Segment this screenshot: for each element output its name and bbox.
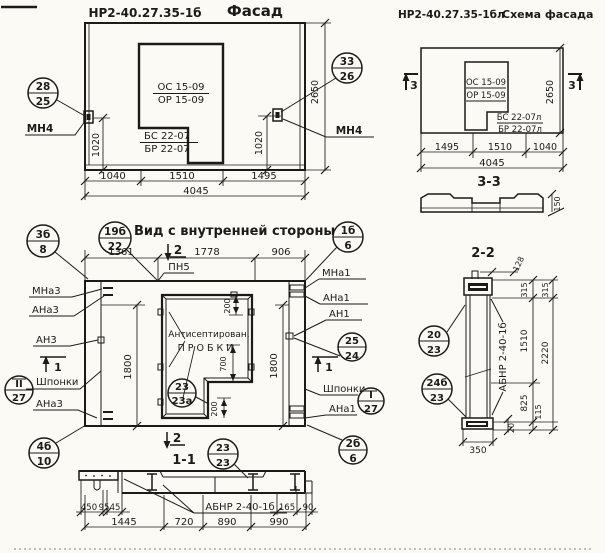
svg-text:23: 23	[175, 382, 189, 393]
callout-33-26: 33 26	[281, 53, 362, 112]
shponki-left-label: Шпонки	[36, 377, 78, 388]
svg-text:24: 24	[345, 351, 359, 362]
schema-code: НР2-40.27.35-1бл	[398, 9, 505, 21]
section-3-3-thickness: 150	[553, 196, 562, 211]
s22-dim-20: 20	[507, 423, 516, 433]
svg-text:23: 23	[216, 443, 230, 454]
left-rib-anchor-marks	[103, 288, 113, 419]
s11-dim-990: 990	[269, 517, 288, 528]
mna1-leader	[305, 279, 366, 288]
s22-dim-1510: 1510	[520, 329, 530, 352]
inner-dim-top: 1361 1778 906	[81, 247, 309, 281]
schema-opening-label-2: ОР 15-09	[466, 91, 505, 101]
facade-drawing: НР2-40.27.35-1б Фасад ОС 15-09 ОР 15-09 …	[25, 2, 374, 200]
s11-dim-1445: 1445	[111, 517, 136, 528]
callout-20-23: 20 23	[419, 305, 465, 356]
svg-text:200: 200	[223, 298, 232, 313]
ana1-bottom-label: АНа1	[329, 404, 356, 415]
svg-text:I: I	[369, 390, 373, 401]
facade-dim-height: 2650	[305, 19, 331, 174]
svg-text:24б: 24б	[427, 377, 448, 389]
dim-plug-bottom: 200	[210, 398, 231, 418]
right-rib-anchor-top-2	[290, 292, 304, 297]
s11-main-lines	[79, 471, 305, 493]
svg-text:4б: 4б	[37, 441, 52, 453]
facade-anchor-left-core	[87, 114, 91, 120]
svg-text:1: 1	[54, 361, 62, 374]
callout-bottom: 25	[36, 96, 51, 108]
s11-shponka-keys	[147, 474, 300, 490]
s22-dim-2220: 2220	[541, 341, 551, 364]
s11-dim-165: 165	[279, 503, 295, 513]
mna3-label: МНа3	[32, 286, 61, 297]
svg-text:27: 27	[364, 404, 378, 415]
section-1-1-drawing: АБНР 2-40-1б 450 95 45 165 90 1445 720 8…	[76, 471, 318, 531]
svg-text:1800: 1800	[123, 354, 134, 379]
inner-dim-v-right: 1800	[269, 301, 289, 430]
mna1-label: МНа1	[322, 268, 351, 279]
inner-dim-w1: 1361	[108, 247, 133, 258]
callout-28-25: 28 25	[28, 78, 85, 116]
svg-text:200: 200	[210, 401, 219, 416]
facade-dim-w3: 1495	[251, 171, 276, 182]
schema-opening-label-4: БР 22-07л	[498, 125, 542, 135]
s22-dim-115: 115	[534, 404, 543, 419]
shponki-right-label: Шпонки	[323, 384, 365, 395]
callout-bottom: 26	[340, 71, 355, 83]
facade-title: Фасад	[227, 2, 283, 20]
s11-left-channel	[79, 471, 118, 480]
section-2-2-drawing: 2-2 АБНР 2-40-1б 20 23 24б 23 315	[419, 246, 558, 456]
svg-text:27: 27	[12, 393, 26, 404]
s22-dim-825: 825	[520, 394, 530, 411]
ana1-bottom-leader	[305, 415, 357, 418]
svg-text:3: 3	[568, 79, 576, 92]
schema-dim-total: 4045	[479, 158, 504, 169]
facade-dim-w2: 1510	[169, 171, 194, 182]
svg-text:1020: 1020	[254, 131, 265, 155]
ana3-bottom-label: АНа3	[36, 399, 63, 410]
callout-I-27: I 27	[358, 388, 384, 415]
inner-dim-v-left: 1800	[101, 301, 145, 430]
svg-text:6: 6	[344, 240, 351, 252]
s11-dim-90: 90	[303, 503, 314, 513]
callout-3b-8: 3б 8	[27, 225, 88, 279]
svg-text:3: 3	[410, 79, 418, 92]
an3-label: АН3	[36, 335, 57, 346]
callout-top: 33	[340, 56, 355, 68]
facade-dim-bottom: 1040 1510 1495 4045	[81, 170, 309, 200]
dim-plug-top: 200	[223, 295, 243, 315]
pn5-label: ПН5	[168, 262, 189, 273]
callout-top: 28	[36, 81, 51, 93]
leader-line	[281, 78, 336, 112]
s11-dim-95: 95	[99, 503, 110, 513]
schema-title: Схема фасада	[502, 8, 593, 21]
schema-dim-w3: 1040	[533, 142, 557, 153]
schema-drawing: НР2-40.27.35-1бл Схема фасада ОС 15-09 О…	[398, 8, 593, 216]
schema-dim-w2: 1510	[488, 142, 512, 153]
callout-24b-23: 24б 23	[422, 374, 466, 417]
svg-text:1б: 1б	[341, 225, 356, 237]
ana1-label: АНа1	[323, 293, 350, 304]
pn5-leader	[158, 273, 194, 281]
drawing-canvas: НР2-40.27.35-1б Фасад ОС 15-09 ОР 15-09 …	[0, 0, 605, 553]
section-2-2-title: 2-2	[471, 246, 495, 261]
section-mark-3-right: 3	[568, 73, 584, 92]
callout-2b-6: 2б 6	[307, 425, 367, 465]
svg-text:3б: 3б	[36, 229, 51, 241]
svg-text:II: II	[15, 379, 22, 390]
schema-dim-height: 2650	[545, 44, 564, 137]
facade-dim-total: 4045	[183, 186, 208, 197]
svg-text:19б: 19б	[104, 226, 126, 238]
callout-4b-10: 4б 10	[29, 425, 86, 468]
leader-line	[57, 100, 85, 116]
s11-dim-890: 890	[217, 517, 236, 528]
section-mark-1-left: 1	[40, 356, 66, 374]
svg-text:6: 6	[349, 453, 356, 465]
callout-II-27: II 27	[5, 376, 33, 404]
svg-text:23: 23	[427, 345, 441, 356]
ana3-bottom-leader	[33, 410, 97, 418]
svg-text:2: 2	[174, 243, 182, 257]
svg-text:2650: 2650	[310, 80, 321, 104]
an1-label: АН1	[329, 309, 350, 320]
blueprint-sheet: НР2-40.27.35-1б Фасад ОС 15-09 ОР 15-09 …	[0, 0, 605, 553]
s11-dims-right: 165 90	[270, 493, 318, 516]
right-rib-anchor-top-1	[290, 285, 304, 290]
facade-anchor-label-right: МН4	[336, 125, 363, 137]
svg-text:700: 700	[219, 356, 228, 371]
section-3-3-profile: 150	[421, 190, 564, 216]
section-mark-3-left: 3	[403, 73, 419, 92]
section-mark-2-bottom: 2	[164, 431, 186, 449]
s11-label: АБНР 2-40-1б	[205, 502, 274, 513]
s22-dim-350: 350	[469, 446, 486, 456]
facade-anchor-label-left: МН4	[27, 123, 54, 135]
svg-text:1800: 1800	[269, 353, 280, 378]
facade-dim-w1: 1040	[100, 171, 125, 182]
facade-opening-label-1: ОС 15-09	[157, 82, 204, 93]
section-1-1-title: 1-1	[172, 453, 196, 468]
s22-dim-315-inner: 315	[520, 282, 529, 297]
facade-opening-label-2: ОР 15-09	[158, 95, 204, 106]
inner-view-title: Вид с внутренней стороны	[134, 224, 335, 239]
s11-dim-45: 45	[110, 503, 121, 513]
callout-23-23a: 23 23а	[168, 379, 207, 407]
s22-body	[466, 295, 490, 418]
schema-dim-bottom: 1495 1510 1040 4045	[417, 133, 567, 172]
svg-text:23: 23	[430, 393, 444, 404]
section-3-3-title: 3-3	[477, 175, 501, 190]
svg-text:20: 20	[427, 330, 441, 341]
ana3-label: АНа3	[32, 305, 59, 316]
svg-text:2: 2	[173, 431, 181, 445]
svg-text:2650: 2650	[545, 80, 556, 104]
facade-opening-label-3: БС 22-07	[144, 131, 190, 142]
right-rib-anchor-bottom-1	[290, 406, 304, 411]
s22-dim-315-outer: 315	[541, 282, 550, 297]
inner-view-drawing: Вид с внутренней стороны 3б 8 19б 22 1б …	[5, 222, 384, 478]
callout-23-23: 23 23	[208, 439, 248, 478]
svg-text:25: 25	[345, 336, 359, 347]
s22-dim-128: 128	[511, 255, 526, 273]
facade-code: НР2-40.27.35-1б	[88, 6, 201, 20]
section-mark-1-right: 1	[312, 356, 338, 374]
right-rib-anchor-bottom-2	[290, 413, 304, 418]
svg-text:2б: 2б	[346, 438, 361, 450]
inner-dim-w2: 1778	[194, 247, 219, 258]
svg-text:23: 23	[216, 458, 230, 469]
svg-text:8: 8	[39, 244, 46, 256]
s11-hook	[94, 480, 100, 490]
svg-text:23а: 23а	[172, 396, 193, 407]
facade-opening-label-4: БР 22-07	[144, 144, 189, 155]
svg-text:1: 1	[325, 361, 333, 374]
s11-dim-720: 720	[174, 517, 193, 528]
schema-dim-w1: 1495	[435, 142, 459, 153]
svg-text:1020: 1020	[91, 133, 102, 157]
schema-opening-label-3: БС 22-07л	[497, 113, 542, 123]
s11-dim-450: 450	[81, 503, 97, 513]
schema-opening-label-1: ОС 15-09	[466, 78, 506, 88]
inner-dim-w3: 906	[271, 247, 290, 258]
facade-anchor-right-core	[276, 112, 280, 118]
svg-text:10: 10	[37, 456, 52, 468]
s22-label: АБНР 2-40-1б	[498, 322, 509, 391]
